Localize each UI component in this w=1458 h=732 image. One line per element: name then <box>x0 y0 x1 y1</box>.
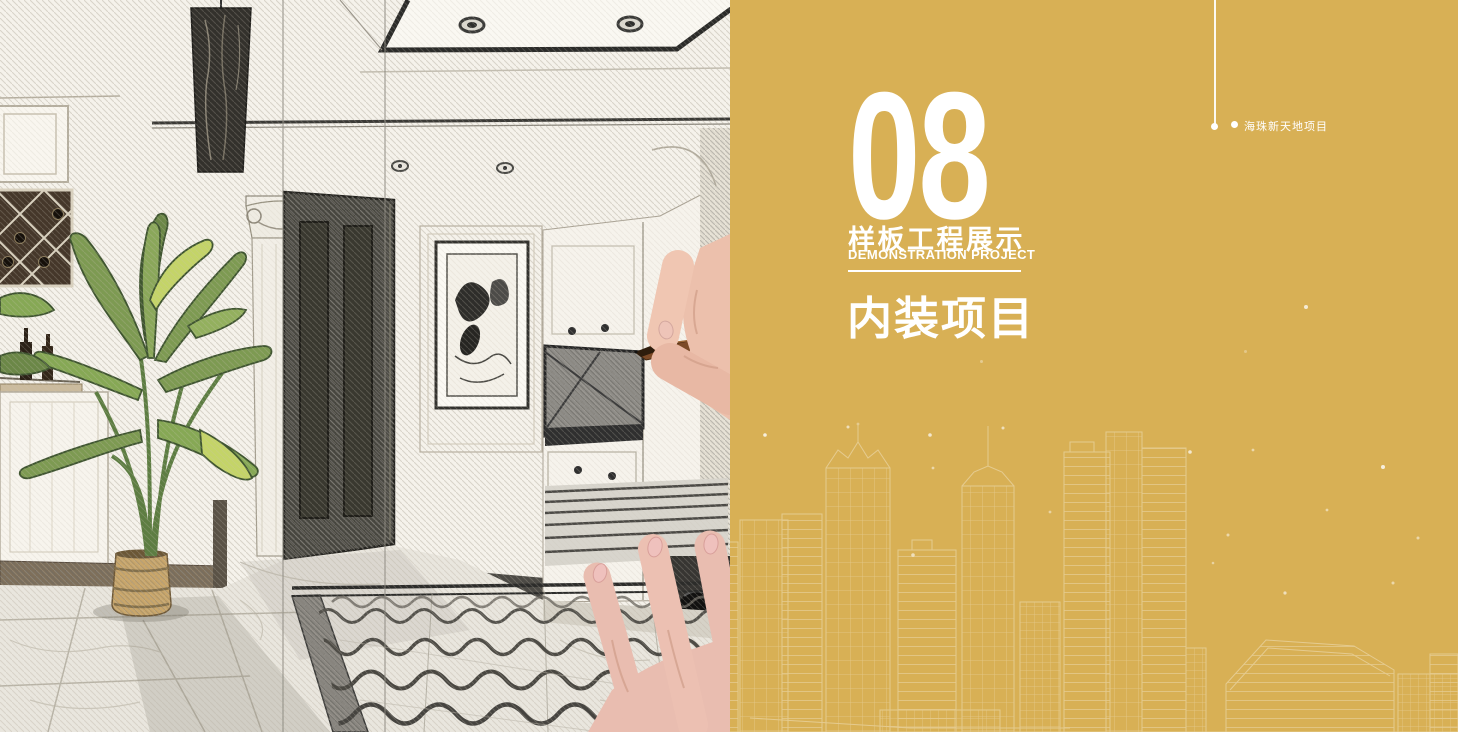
project-marker-line <box>1214 0 1216 125</box>
star-dot <box>980 360 983 363</box>
section-title: 内装项目 <box>847 282 1035 347</box>
star-dot <box>1244 350 1247 353</box>
project-label: 海珠新天地项目 <box>1244 118 1328 134</box>
city-skyline-outline <box>730 422 1458 732</box>
chapter-panel: 08 样板工程展示 DEMONSTRATION PROJECT 内装项目 海珠新… <box>730 0 1458 732</box>
chapter-title-english: DEMONSTRATION PROJECT <box>848 247 1035 262</box>
marker-end-dot-icon <box>1211 123 1218 130</box>
bullet-dot-icon <box>1231 121 1238 128</box>
presentation-slide: 08 样板工程展示 DEMONSTRATION PROJECT 内装项目 海珠新… <box>0 0 1458 732</box>
interior-sketch-illustration <box>0 0 730 732</box>
title-divider-line <box>848 270 1021 272</box>
star-dot <box>1304 305 1308 309</box>
